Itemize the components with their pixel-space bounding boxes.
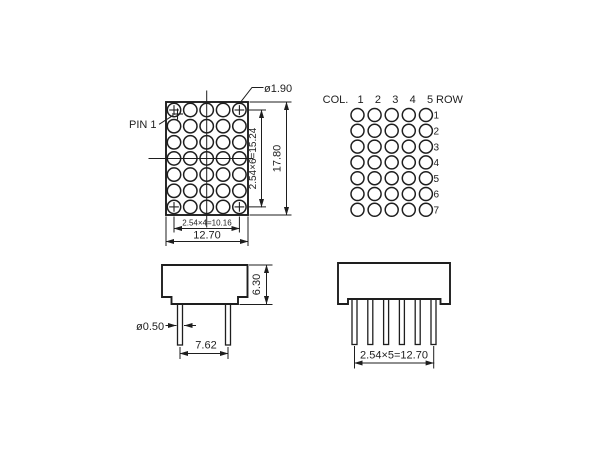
pin-diameter-label: ø0.50 [136, 321, 164, 333]
row-number: 6 [434, 190, 440, 201]
lead-pin [431, 299, 436, 345]
led-dot [216, 168, 229, 181]
led-dot [167, 184, 180, 197]
row-number: 5 [434, 174, 440, 185]
led-dot [233, 168, 246, 181]
lead-pins [352, 299, 436, 345]
side-profile-view: 2.54×5=12.70 [338, 263, 450, 368]
led-dot [351, 124, 364, 137]
pin-span-label: 7.62 [195, 340, 216, 352]
led-dot [368, 140, 381, 153]
package-body [338, 263, 450, 304]
led-dot [184, 136, 197, 149]
led-dot [233, 120, 246, 133]
led-dot [368, 188, 381, 201]
row-pitch-label: 2.54×6=15.24 [248, 127, 259, 189]
led-dot [233, 184, 246, 197]
led-dot [368, 203, 381, 216]
column-number: 5 [427, 94, 433, 106]
led-dot [419, 140, 432, 153]
led-dot [351, 172, 364, 185]
lead-pin [399, 299, 404, 345]
led-dot [419, 172, 432, 185]
led-dot [184, 120, 197, 133]
led-dot [184, 168, 197, 181]
led-dot [216, 136, 229, 149]
pin1-label: PIN 1 [129, 119, 157, 131]
lead-pin [384, 299, 389, 345]
led-dot [385, 109, 398, 122]
led-dot [167, 120, 180, 133]
led-dot [368, 156, 381, 169]
led-dot [368, 109, 381, 122]
dot-diameter-label: ø1.90 [264, 83, 292, 95]
col-pitch-label: 2.54×4=10.16 [182, 219, 232, 228]
col-header: COL. [323, 94, 349, 106]
column-number: 1 [357, 94, 363, 106]
body-height-label: 6.30 [251, 274, 263, 295]
led-dot [351, 203, 364, 216]
led-dot [167, 168, 180, 181]
width-label: 12.70 [193, 230, 221, 242]
lead-pin [352, 299, 357, 345]
dot-matrix-technical-drawing: PIN 1 ø1.90 2.54×6=15.24 17.80 2.54×4=10… [0, 0, 600, 450]
row-number: 4 [434, 158, 440, 169]
row-number: 3 [434, 142, 440, 153]
led-dot [385, 156, 398, 169]
led-dot [216, 200, 229, 213]
front-view: PIN 1 ø1.90 2.54×6=15.24 17.80 2.54×4=10… [129, 83, 292, 246]
column-number: 3 [392, 94, 398, 106]
led-dot [419, 188, 432, 201]
led-dot [402, 124, 415, 137]
led-dot [184, 184, 197, 197]
led-dot [402, 203, 415, 216]
led-dot [419, 109, 432, 122]
led-dot [402, 172, 415, 185]
package-body [162, 265, 248, 304]
led-dot [419, 203, 432, 216]
height-label: 17.80 [272, 145, 284, 173]
led-dot [368, 124, 381, 137]
led-dot [184, 200, 197, 213]
led-dot [402, 109, 415, 122]
front-profile-view: 6.30 ø0.50 7.62 [136, 265, 272, 359]
led-dot [419, 124, 432, 137]
lead-pin [178, 304, 183, 345]
led-dot [167, 136, 180, 149]
row-header: ROW [436, 94, 464, 106]
pinout-view: COL. ROW 12345 1234567 [323, 94, 464, 217]
row-number: 1 [434, 111, 440, 122]
led-dot [351, 188, 364, 201]
led-dot [402, 140, 415, 153]
row-numbers: 1234567 [434, 111, 440, 217]
led-dot [351, 109, 364, 122]
led-dot [351, 140, 364, 153]
lead-pin [226, 304, 231, 345]
column-number: 2 [375, 94, 381, 106]
led-dot [184, 103, 197, 116]
led-dot [385, 172, 398, 185]
lead-pin [368, 299, 373, 345]
led-dot [385, 140, 398, 153]
lead-pin [415, 299, 420, 345]
led-dot [419, 156, 432, 169]
dot-grid [351, 109, 432, 217]
led-dot [385, 203, 398, 216]
led-dot [385, 188, 398, 201]
pin-pitch-label: 2.54×5=12.70 [360, 350, 428, 362]
row-number: 2 [434, 127, 440, 138]
led-dot [385, 124, 398, 137]
column-number: 4 [410, 94, 416, 106]
led-dot [402, 156, 415, 169]
led-dot [402, 188, 415, 201]
column-numbers: 12345 [357, 94, 433, 106]
led-dot [216, 184, 229, 197]
led-dot [351, 156, 364, 169]
datasheet-drawing-page: PIN 1 ø1.90 2.54×6=15.24 17.80 2.54×4=10… [0, 0, 600, 450]
led-dot [368, 172, 381, 185]
led-dot [216, 120, 229, 133]
row-number: 7 [434, 206, 440, 217]
led-dot [216, 103, 229, 116]
led-dot [233, 136, 246, 149]
